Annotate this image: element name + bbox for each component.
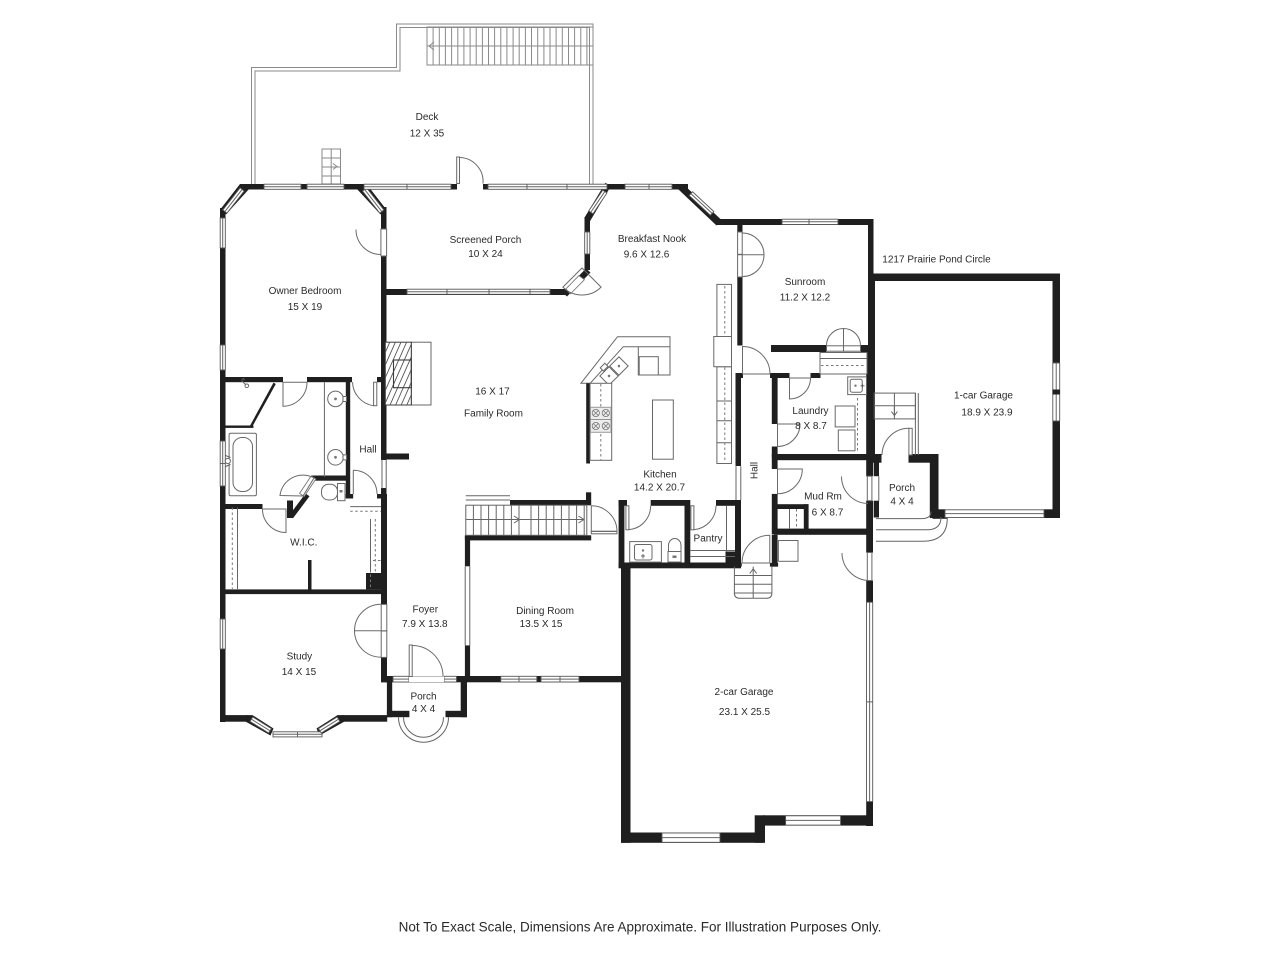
svg-text:4 X 4: 4 X 4 — [890, 497, 914, 508]
svg-text:11.2 X 12.2: 11.2 X 12.2 — [780, 293, 831, 304]
svg-text:Dining Room: Dining Room — [516, 606, 574, 617]
svg-text:Porch: Porch — [410, 692, 436, 703]
svg-text:W.I.C.: W.I.C. — [290, 538, 317, 549]
svg-text:4 X 4: 4 X 4 — [412, 704, 436, 715]
svg-text:10 X 24: 10 X 24 — [468, 249, 503, 260]
svg-text:Not To Exact Scale, Dimensions: Not To Exact Scale, Dimensions Are Appro… — [399, 920, 882, 935]
svg-text:16 X 17: 16 X 17 — [475, 387, 510, 398]
svg-text:14.2 X 20.7: 14.2 X 20.7 — [634, 483, 686, 494]
svg-text:Sunroom: Sunroom — [785, 277, 826, 288]
svg-text:Hall: Hall — [359, 445, 376, 456]
svg-text:8 X 8.7: 8 X 8.7 — [795, 421, 827, 432]
svg-text:Owner Bedroom: Owner Bedroom — [269, 286, 342, 297]
svg-text:9.6 X 12.6: 9.6 X 12.6 — [624, 250, 670, 261]
svg-text:Kitchen: Kitchen — [643, 470, 676, 481]
svg-text:1-car Garage: 1-car Garage — [954, 391, 1013, 402]
svg-text:6 X 8.7: 6 X 8.7 — [812, 508, 844, 519]
svg-text:Pantry: Pantry — [694, 534, 723, 545]
svg-text:18.9 X 23.9: 18.9 X 23.9 — [961, 408, 1013, 419]
svg-text:23.1 X 25.5: 23.1 X 25.5 — [719, 707, 771, 718]
svg-text:Mud Rm: Mud Rm — [804, 492, 842, 503]
svg-text:13.5 X 15: 13.5 X 15 — [520, 619, 563, 630]
svg-text:15 X 19: 15 X 19 — [288, 302, 323, 313]
svg-text:Laundry: Laundry — [792, 406, 828, 417]
svg-text:14 X 15: 14 X 15 — [282, 667, 317, 678]
svg-text:12 X 35: 12 X 35 — [410, 129, 445, 140]
svg-text:Porch: Porch — [889, 483, 915, 494]
svg-text:Breakfast Nook: Breakfast Nook — [618, 234, 687, 245]
svg-text:7.9 X 13.8: 7.9 X 13.8 — [402, 619, 448, 630]
svg-text:Study: Study — [287, 652, 313, 663]
svg-text:1217 Prairie Pond Circle: 1217 Prairie Pond Circle — [882, 255, 991, 266]
svg-text:Screened Porch: Screened Porch — [450, 235, 522, 246]
svg-text:2-car Garage: 2-car Garage — [715, 687, 774, 698]
svg-text:Hall: Hall — [750, 462, 761, 479]
svg-text:Deck: Deck — [416, 112, 440, 123]
svg-text:Foyer: Foyer — [413, 605, 439, 616]
svg-text:Family Room: Family Room — [464, 409, 523, 420]
